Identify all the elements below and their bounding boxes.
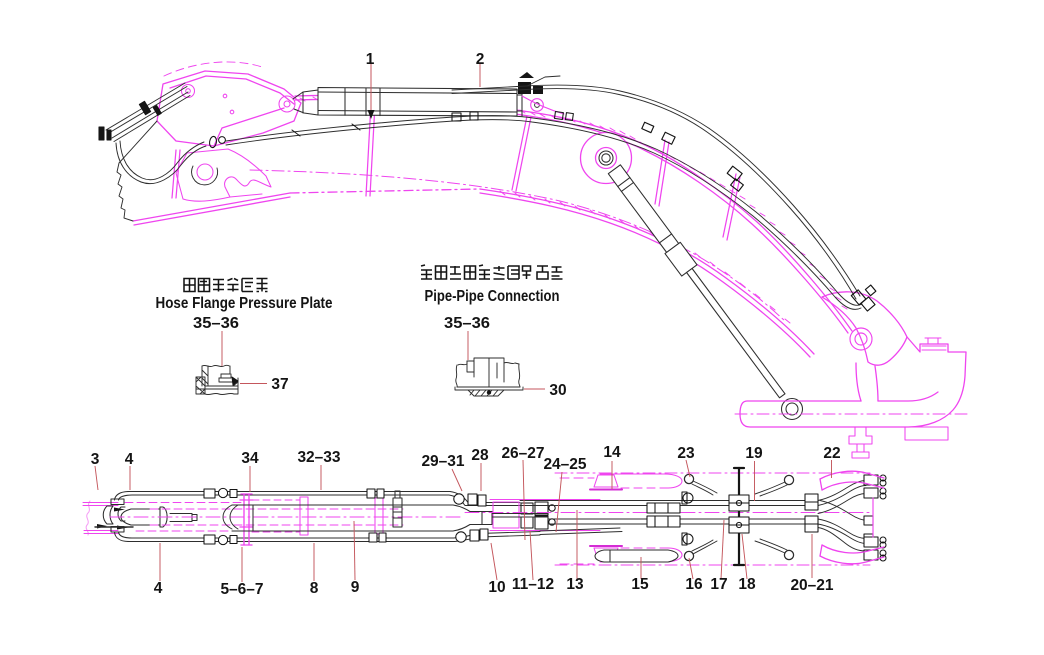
svg-text:37: 37 xyxy=(271,376,288,393)
svg-text:13: 13 xyxy=(566,576,584,593)
svg-text:14: 14 xyxy=(603,444,621,461)
svg-text:4: 4 xyxy=(125,451,134,468)
svg-text:4: 4 xyxy=(154,580,163,597)
svg-text:18: 18 xyxy=(738,576,756,593)
svg-text:19: 19 xyxy=(745,445,763,462)
svg-text:28: 28 xyxy=(471,447,489,464)
svg-text:34: 34 xyxy=(241,450,259,467)
svg-text:22: 22 xyxy=(823,445,840,462)
svg-text:16: 16 xyxy=(685,576,703,593)
svg-text:29–31: 29–31 xyxy=(421,453,464,470)
svg-text:32–33: 32–33 xyxy=(297,449,340,466)
svg-text:15: 15 xyxy=(631,576,649,593)
svg-text:30: 30 xyxy=(549,382,566,399)
svg-text:24–25: 24–25 xyxy=(543,456,586,473)
svg-text:23: 23 xyxy=(677,445,695,462)
svg-text:9: 9 xyxy=(351,579,360,596)
svg-text:Hose Flange Pressure Plate: Hose Flange Pressure Plate xyxy=(156,295,333,312)
svg-text:Pipe-Pipe Connection: Pipe-Pipe Connection xyxy=(425,288,560,305)
svg-text:3: 3 xyxy=(91,451,100,468)
svg-text:2: 2 xyxy=(476,51,485,68)
svg-text:17: 17 xyxy=(710,576,727,593)
svg-text:11–12: 11–12 xyxy=(512,576,554,593)
svg-text:8: 8 xyxy=(310,580,319,597)
svg-text:35–36: 35–36 xyxy=(193,315,239,332)
svg-text:26–27: 26–27 xyxy=(501,445,544,462)
svg-text:5–6–7: 5–6–7 xyxy=(220,581,263,598)
svg-text:20–21: 20–21 xyxy=(790,577,833,594)
svg-text:10: 10 xyxy=(488,579,505,596)
svg-text:1: 1 xyxy=(366,51,375,68)
svg-text:35–36: 35–36 xyxy=(444,315,490,332)
